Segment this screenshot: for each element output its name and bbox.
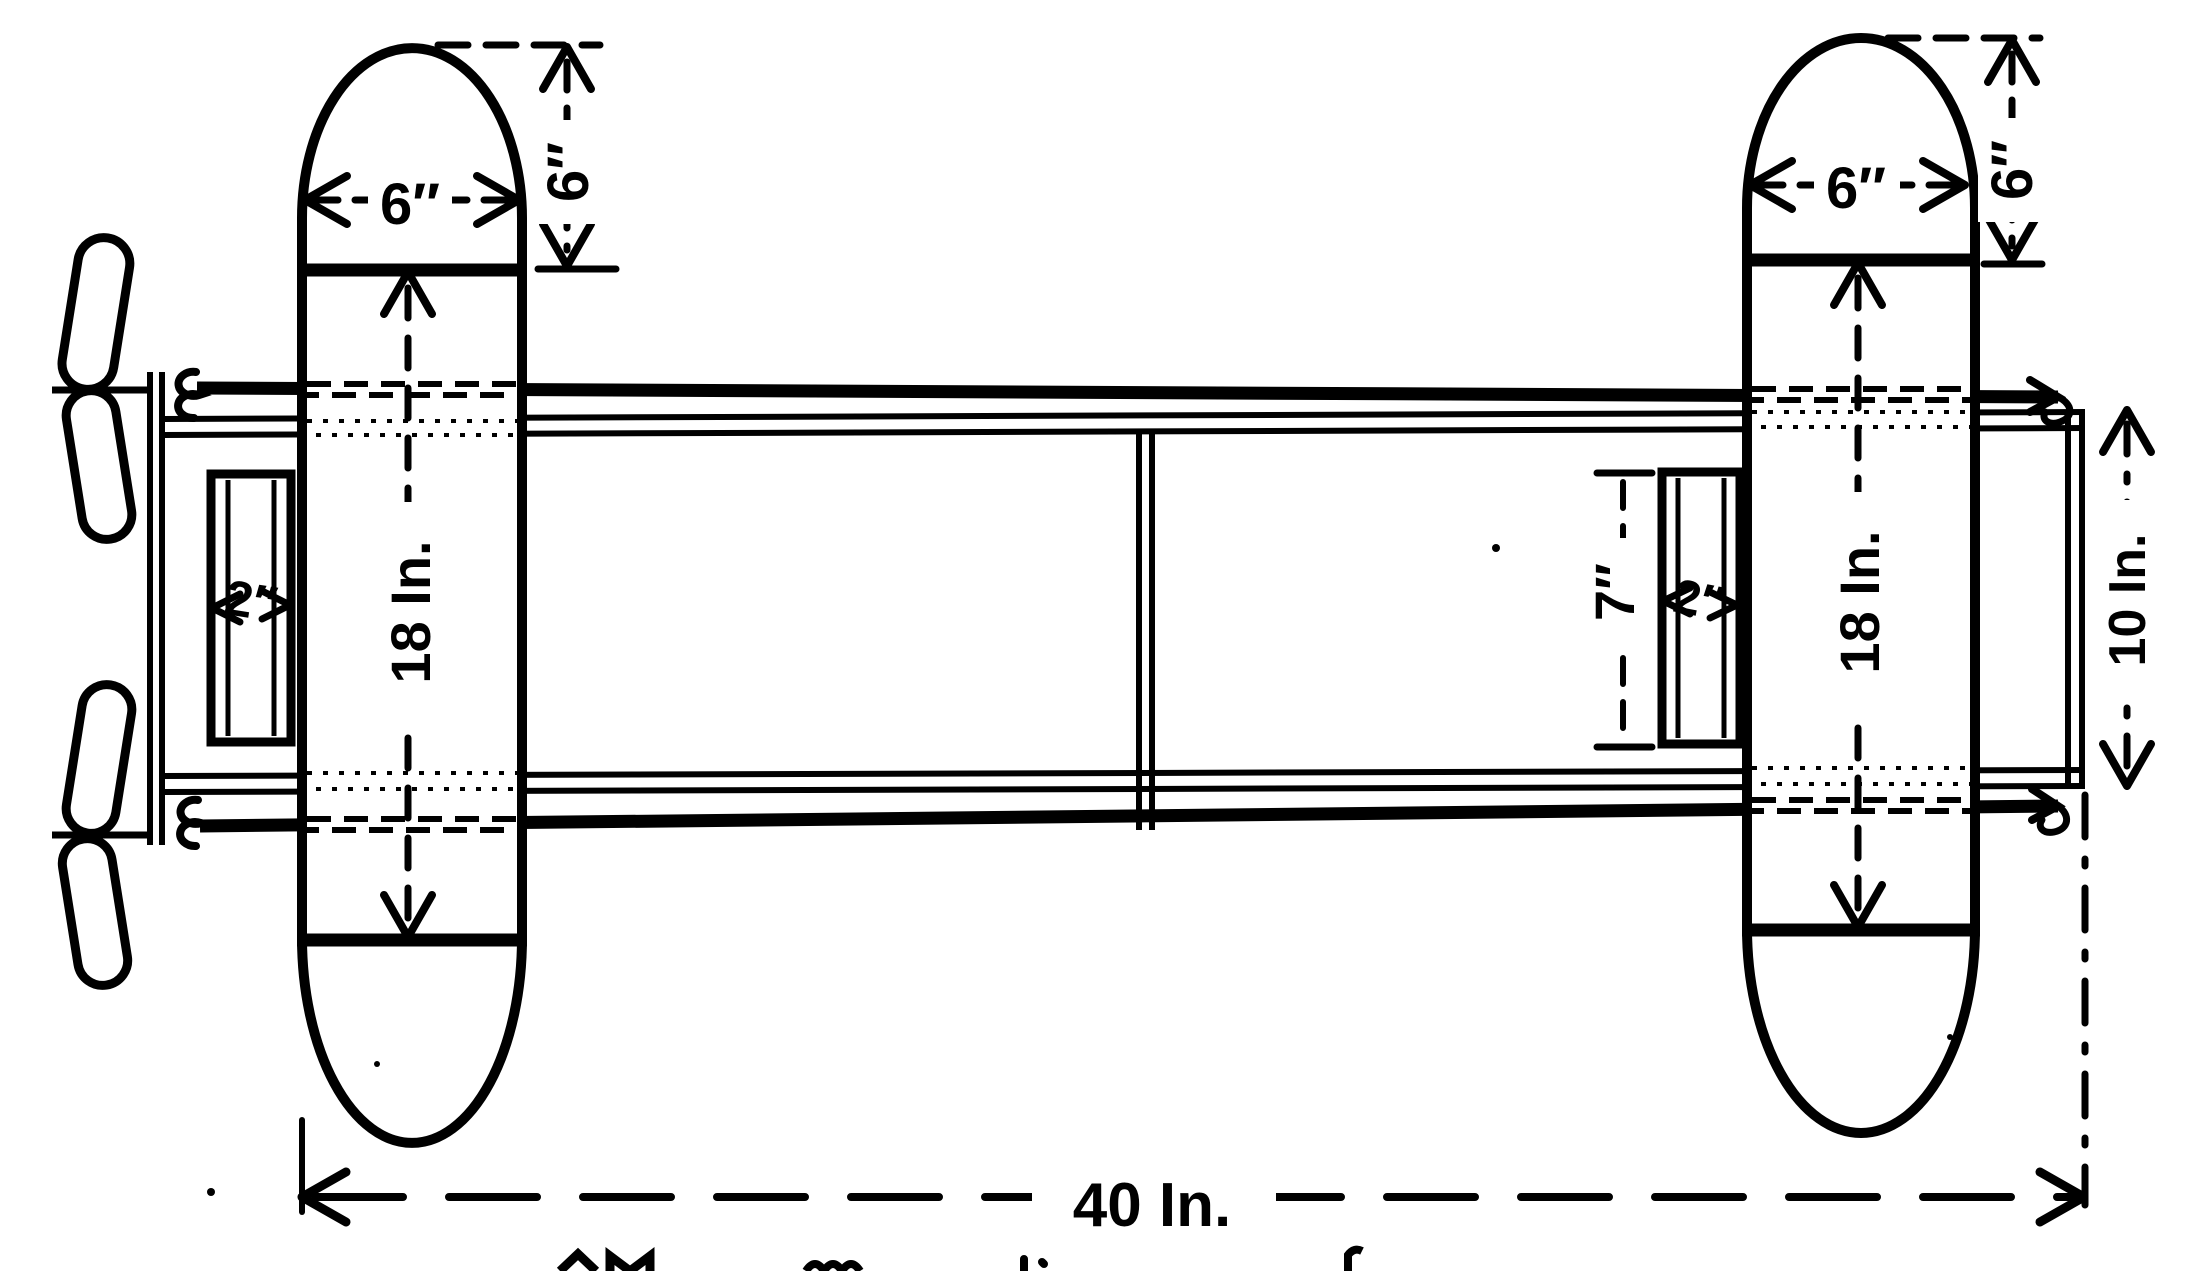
caption-fragment bbox=[610, 1256, 650, 1271]
stray-dot bbox=[207, 1188, 215, 1196]
drawing-page: 6″ 6″ 18 In. bbox=[0, 0, 2210, 1271]
dim-tail-plane: 10 In. bbox=[2095, 410, 2159, 786]
stray-dot bbox=[1492, 544, 1500, 552]
dim-left-float-width-label: 6″ bbox=[380, 172, 440, 237]
caption-fragment bbox=[1348, 1250, 1362, 1271]
caption-fragment bbox=[806, 1264, 860, 1271]
dim-right-motor-bar-width-label: 2″ bbox=[1669, 570, 1728, 632]
dim-right-motor-bar-length-label: 7″ bbox=[1583, 563, 1646, 621]
dim-right-motor-bar-length: 7″ bbox=[1580, 473, 1652, 747]
dim-left-motor-bar-label: 2″ bbox=[221, 569, 281, 632]
dim-tail-plane-label: 10 In. bbox=[2099, 534, 2157, 667]
bottom-propeller-upper-blade bbox=[63, 681, 136, 837]
caption-fragment bbox=[1024, 1259, 1044, 1271]
dim-overall-length-label: 40 In. bbox=[1073, 1171, 1232, 1240]
stray-dot bbox=[1947, 1034, 1953, 1040]
caption-fragment bbox=[560, 1254, 596, 1271]
stray-dot bbox=[374, 1061, 380, 1067]
dim-right-float-width-label: 6″ bbox=[1826, 156, 1886, 221]
dim-right-float-nose-label: 6″ bbox=[1980, 140, 2045, 200]
front-bottom-hook bbox=[180, 800, 201, 846]
dim-left-float-nose-label: 6″ bbox=[536, 142, 601, 202]
top-propeller-lower-blade bbox=[63, 387, 136, 543]
top-propeller-upper-blade bbox=[58, 234, 133, 393]
propellers bbox=[52, 234, 150, 989]
front-top-hook bbox=[178, 372, 199, 418]
dim-right-float-length-label: 18 In. bbox=[1828, 530, 1891, 673]
dim-left-float-length-label: 18 In. bbox=[379, 540, 442, 683]
bottom-propeller-lower-blade bbox=[59, 835, 132, 989]
caption-fragments bbox=[560, 1250, 1362, 1271]
seaplane-plan-drawing: 6″ 6″ 18 In. bbox=[0, 0, 2210, 1271]
